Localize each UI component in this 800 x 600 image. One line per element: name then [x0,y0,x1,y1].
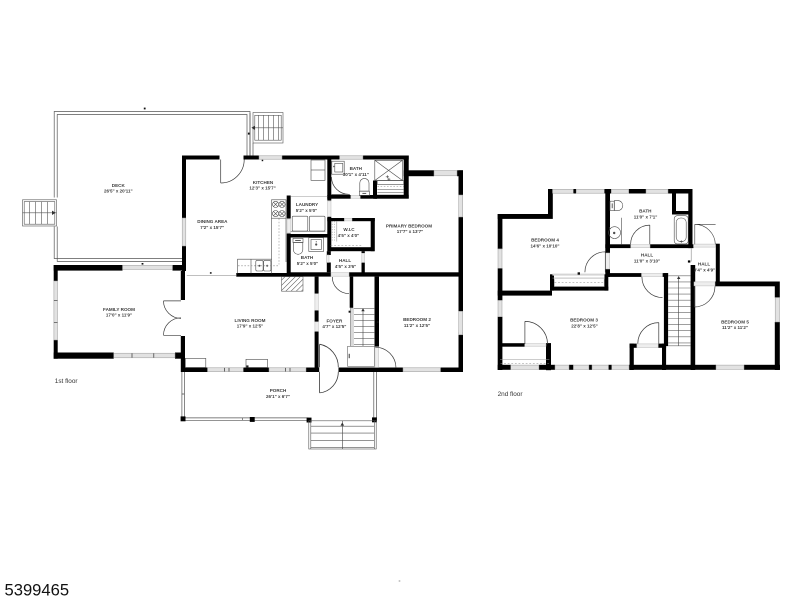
svg-text:26'1" x 6'7": 26'1" x 6'7" [266,394,290,399]
svg-text:22'8" x 12'5": 22'8" x 12'5" [571,324,597,329]
svg-text:2nd floor: 2nd floor [498,391,524,398]
svg-text:4'7" x 12'5": 4'7" x 12'5" [322,324,346,329]
svg-text:BEDROOM 3: BEDROOM 3 [570,318,598,323]
svg-text:BEDROOM 4: BEDROOM 4 [531,237,559,242]
svg-text:DECK: DECK [112,183,126,188]
svg-text:PRIMARY BEDROOM: PRIMARY BEDROOM [386,224,432,229]
svg-text:5399465: 5399465 [5,581,70,600]
svg-text:14'6" x 10'10": 14'6" x 10'10" [531,244,560,249]
svg-text:7'2" x 15'7": 7'2" x 15'7" [200,225,224,230]
svg-text:4'5" x 4'0": 4'5" x 4'0" [338,233,359,238]
svg-text:5'2" x 5'0": 5'2" x 5'0" [296,208,317,213]
svg-text:11'0" x 3'10": 11'0" x 3'10" [634,259,660,264]
svg-text:30'1" x 4'11": 30'1" x 4'11" [343,172,369,177]
svg-text:5'2" x 5'0": 5'2" x 5'0" [297,261,318,266]
svg-text:26'5" x 20'11": 26'5" x 20'11" [104,189,133,194]
svg-text:HALL: HALL [698,261,710,266]
svg-text:17'7" x 13'7": 17'7" x 13'7" [397,229,423,234]
svg-text:KITCHEN: KITCHEN [253,180,274,185]
svg-text:DINING AREA: DINING AREA [197,219,228,224]
svg-text:17'9" x 12'5": 17'9" x 12'5" [237,323,263,328]
svg-text:BEDROOM 2: BEDROOM 2 [403,317,431,322]
svg-text:12'3" x 15'7": 12'3" x 15'7" [249,186,275,191]
svg-text:BATH: BATH [301,255,314,260]
svg-text:11'2" x 11'2": 11'2" x 11'2" [722,325,748,330]
svg-text:BATH: BATH [350,166,363,171]
svg-text:1st floor: 1st floor [55,378,79,385]
svg-text:11'2" x 12'5": 11'2" x 12'5" [404,323,430,328]
svg-text:FAMILY ROOM: FAMILY ROOM [103,307,135,312]
svg-text:4'5" x 3'6": 4'5" x 3'6" [335,264,356,269]
svg-text:LAUNDRY: LAUNDRY [296,202,318,207]
svg-text:LIVING ROOM: LIVING ROOM [235,318,266,323]
svg-text:BATH: BATH [639,209,652,214]
svg-text:HALL: HALL [641,253,653,258]
svg-text:HALL: HALL [339,258,351,263]
svg-text:BEDROOM 5: BEDROOM 5 [721,320,749,325]
svg-text:FOYER: FOYER [326,318,343,323]
svg-text:PORCH: PORCH [270,388,287,393]
svg-text:11'0" x 7'1": 11'0" x 7'1" [634,215,658,220]
svg-text:3'4" x 4'9": 3'4" x 4'9" [694,267,715,272]
svg-text:W.I.C: W.I.C [343,227,355,232]
svg-text:17'0" x 11'9": 17'0" x 11'9" [106,312,132,317]
